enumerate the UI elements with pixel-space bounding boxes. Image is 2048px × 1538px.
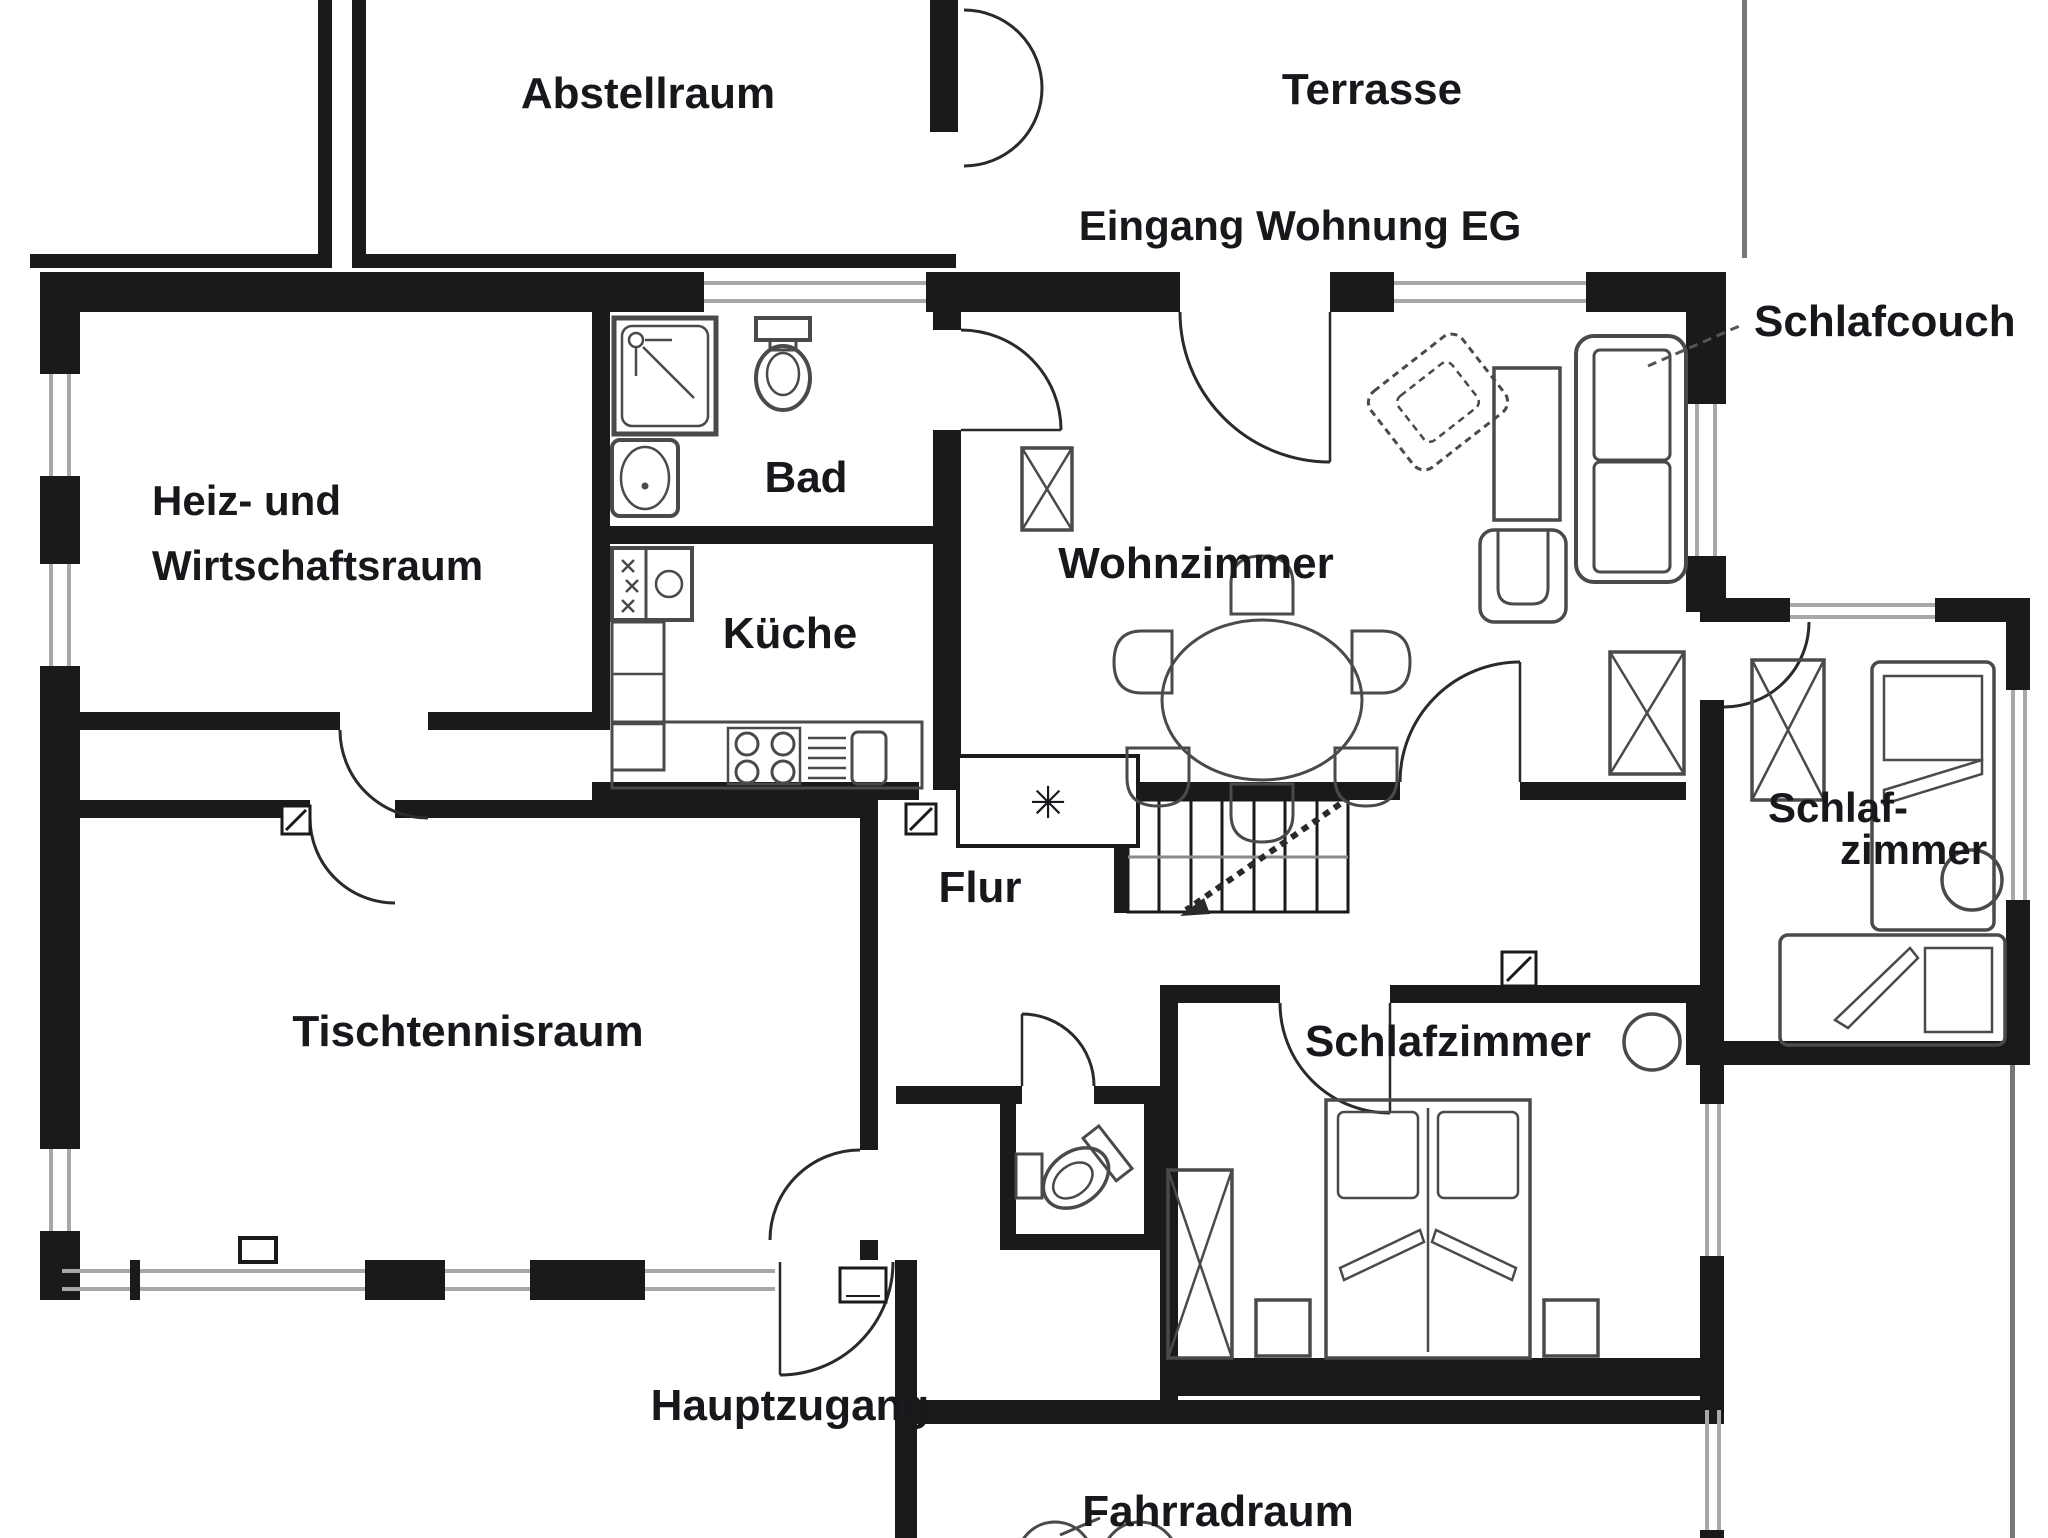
label-abstellraum: Abstellraum xyxy=(521,69,775,118)
side-table xyxy=(1494,368,1560,520)
washbasin-icon xyxy=(612,440,678,516)
double-bed xyxy=(1326,1100,1530,1358)
door-eingang xyxy=(1180,312,1330,462)
wardrobe-wing xyxy=(1752,660,1824,800)
wall-heiz-bottom-2 xyxy=(428,712,610,730)
wall-left-3 xyxy=(40,670,80,1145)
label-heizraum-line2: Wirtschaftsraum xyxy=(152,542,483,589)
wing-top-1 xyxy=(1700,598,1790,622)
wall-right-lower-1 xyxy=(1700,1065,1724,1100)
nightstand-right xyxy=(1544,1300,1598,1356)
wall-bad-right-2 xyxy=(933,430,961,790)
label-terrasse: Terrasse xyxy=(1282,65,1462,114)
label-kueche: Küche xyxy=(723,609,857,658)
fridge-freezer-icon xyxy=(612,548,692,620)
wall-abstell-right xyxy=(930,0,958,132)
wall-bottom-4 xyxy=(530,1260,645,1300)
meter-box-kueche xyxy=(906,804,936,834)
wall-schlafzimmer-top-2 xyxy=(1390,985,1686,1003)
window-pillar xyxy=(240,1238,276,1262)
wall-leftroom-bottom xyxy=(30,254,330,268)
terrasse-edge-line xyxy=(1742,0,1747,258)
wall-bottom-3 xyxy=(365,1260,445,1300)
window-tt-bottom-2 xyxy=(140,1238,365,1289)
window-heiz-1 xyxy=(40,366,80,484)
label-bad: Bad xyxy=(764,453,847,502)
door-tischtennis-top xyxy=(310,818,395,903)
wall-jog-fill xyxy=(1686,985,1724,1065)
wall-wc-bottom xyxy=(1000,1234,1160,1250)
sofa-schlafcouch xyxy=(1576,336,1686,582)
wall-leftroom-right xyxy=(318,0,332,268)
garden-edge-line xyxy=(2010,1065,2015,1538)
door-hauptzugang xyxy=(780,1262,893,1375)
label-schlafcouch: Schlafcouch xyxy=(1754,297,2016,346)
shower-icon xyxy=(614,318,716,434)
single-bed-horizontal xyxy=(1780,935,2005,1045)
wall-top-1 xyxy=(40,272,700,312)
wall-tt-right-2 xyxy=(860,1240,878,1260)
label-fahrradraum: Fahrradraum xyxy=(1082,1487,1353,1536)
wall-abstell-left xyxy=(352,0,366,268)
wall-tt-top-1 xyxy=(80,800,310,818)
wall-bad-right-1 xyxy=(933,312,961,330)
door-tischtennis-right xyxy=(770,1150,860,1240)
wall-tt-right-1 xyxy=(860,818,878,1150)
window-tt-left xyxy=(40,1141,80,1239)
door-bad xyxy=(961,330,1061,430)
label-schlafzimmer-klein-line1: Schlaf- xyxy=(1768,784,1908,831)
doors xyxy=(310,10,1809,1375)
toilet-icon xyxy=(756,318,810,410)
kitchen-counter-left xyxy=(612,622,664,770)
door-wohnzimmer-flur xyxy=(1400,662,1520,782)
label-schlafzimmer-klein-line2: zimmer xyxy=(1840,826,1987,873)
wall-right-lower-3 xyxy=(1700,1530,1724,1538)
window-hall-bottom xyxy=(645,1271,775,1289)
kitchen-counter-bottom xyxy=(612,722,922,788)
wall-schlafzimmer-top-1 xyxy=(1160,985,1280,1003)
wc-fixtures xyxy=(1016,1126,1132,1221)
armchair-u xyxy=(1480,530,1566,622)
window-schlafzimmer-right xyxy=(1700,1096,1724,1264)
label-eingang: Eingang Wohnung EG xyxy=(1079,202,1522,249)
door-wing xyxy=(1724,622,1809,707)
wall-bad-bottom xyxy=(592,526,933,544)
wall-schlafzimmer-bottom xyxy=(1160,1358,1724,1396)
window-tt-bottom-3 xyxy=(445,1271,530,1289)
staircase xyxy=(1128,800,1348,916)
kitchen-fixtures xyxy=(612,548,922,788)
wall-abstell-bottom xyxy=(352,254,956,268)
label-tischtennisraum: Tischtennisraum xyxy=(292,1007,643,1056)
wall-bottom-2 xyxy=(130,1260,140,1300)
window-wing-top xyxy=(1790,605,1935,617)
label-hauptzugang: Hauptzugang xyxy=(651,1381,930,1430)
flue-box: ✳ xyxy=(958,756,1138,846)
window-fahrrad-right xyxy=(1707,1410,1719,1530)
label-heizraum-line1: Heiz- und xyxy=(152,477,341,524)
wall-top-2 xyxy=(930,272,1180,312)
chimney-box-left xyxy=(1022,448,1072,530)
meter-box-hall xyxy=(1502,952,1536,986)
window-heiz-2 xyxy=(40,556,80,674)
french-door-terrasse xyxy=(964,10,1042,166)
wing-right-1 xyxy=(2006,598,2030,690)
wall-hall-wc-1 xyxy=(896,1086,1022,1104)
meter-box-tt xyxy=(282,806,310,834)
floor-plan-svg: ✳ xyxy=(0,0,2048,1538)
window-bad-top xyxy=(696,272,934,312)
wall-wc-left xyxy=(1000,1104,1016,1234)
wall-heiz-bottom-1 xyxy=(80,712,340,730)
wing-right-2 xyxy=(2006,900,2030,1065)
wall-heiz-right xyxy=(592,312,610,712)
floor-plan-page: ✳ xyxy=(0,0,2048,1538)
door-wc xyxy=(1022,1014,1094,1086)
wall-left-2 xyxy=(40,480,80,560)
wall-fahrrad-top xyxy=(895,1400,1724,1424)
label-wohnzimmer: Wohnzimmer xyxy=(1058,539,1333,588)
wall-wohnzimmer-bottom-2 xyxy=(1520,782,1686,800)
nightstand-left xyxy=(1256,1300,1310,1356)
armchair-dashed xyxy=(1363,328,1514,475)
label-flur: Flur xyxy=(938,863,1021,912)
chimney-box-right xyxy=(1610,652,1684,774)
wall-wc-right xyxy=(1144,1104,1160,1250)
wall-hall-wc-2 xyxy=(1094,1086,1160,1104)
wall-top-3 xyxy=(1330,272,1390,312)
window-wing-right xyxy=(2013,690,2025,900)
wall-bottom-1 xyxy=(40,1260,62,1300)
wall-tt-top-2 xyxy=(395,800,878,818)
window-wohnzimmer-right xyxy=(1686,396,1726,564)
wall-left-1 xyxy=(40,272,80,370)
window-wohnzimmer-top xyxy=(1386,272,1594,312)
round-table-main xyxy=(1624,1014,1680,1070)
wc-toilet-icon xyxy=(1031,1126,1132,1221)
windows xyxy=(40,272,2025,1530)
wc-sink-icon xyxy=(1016,1154,1042,1198)
flue-symbol: ✳ xyxy=(1030,779,1067,828)
label-schlafzimmer: Schlafzimmer xyxy=(1305,1017,1591,1066)
